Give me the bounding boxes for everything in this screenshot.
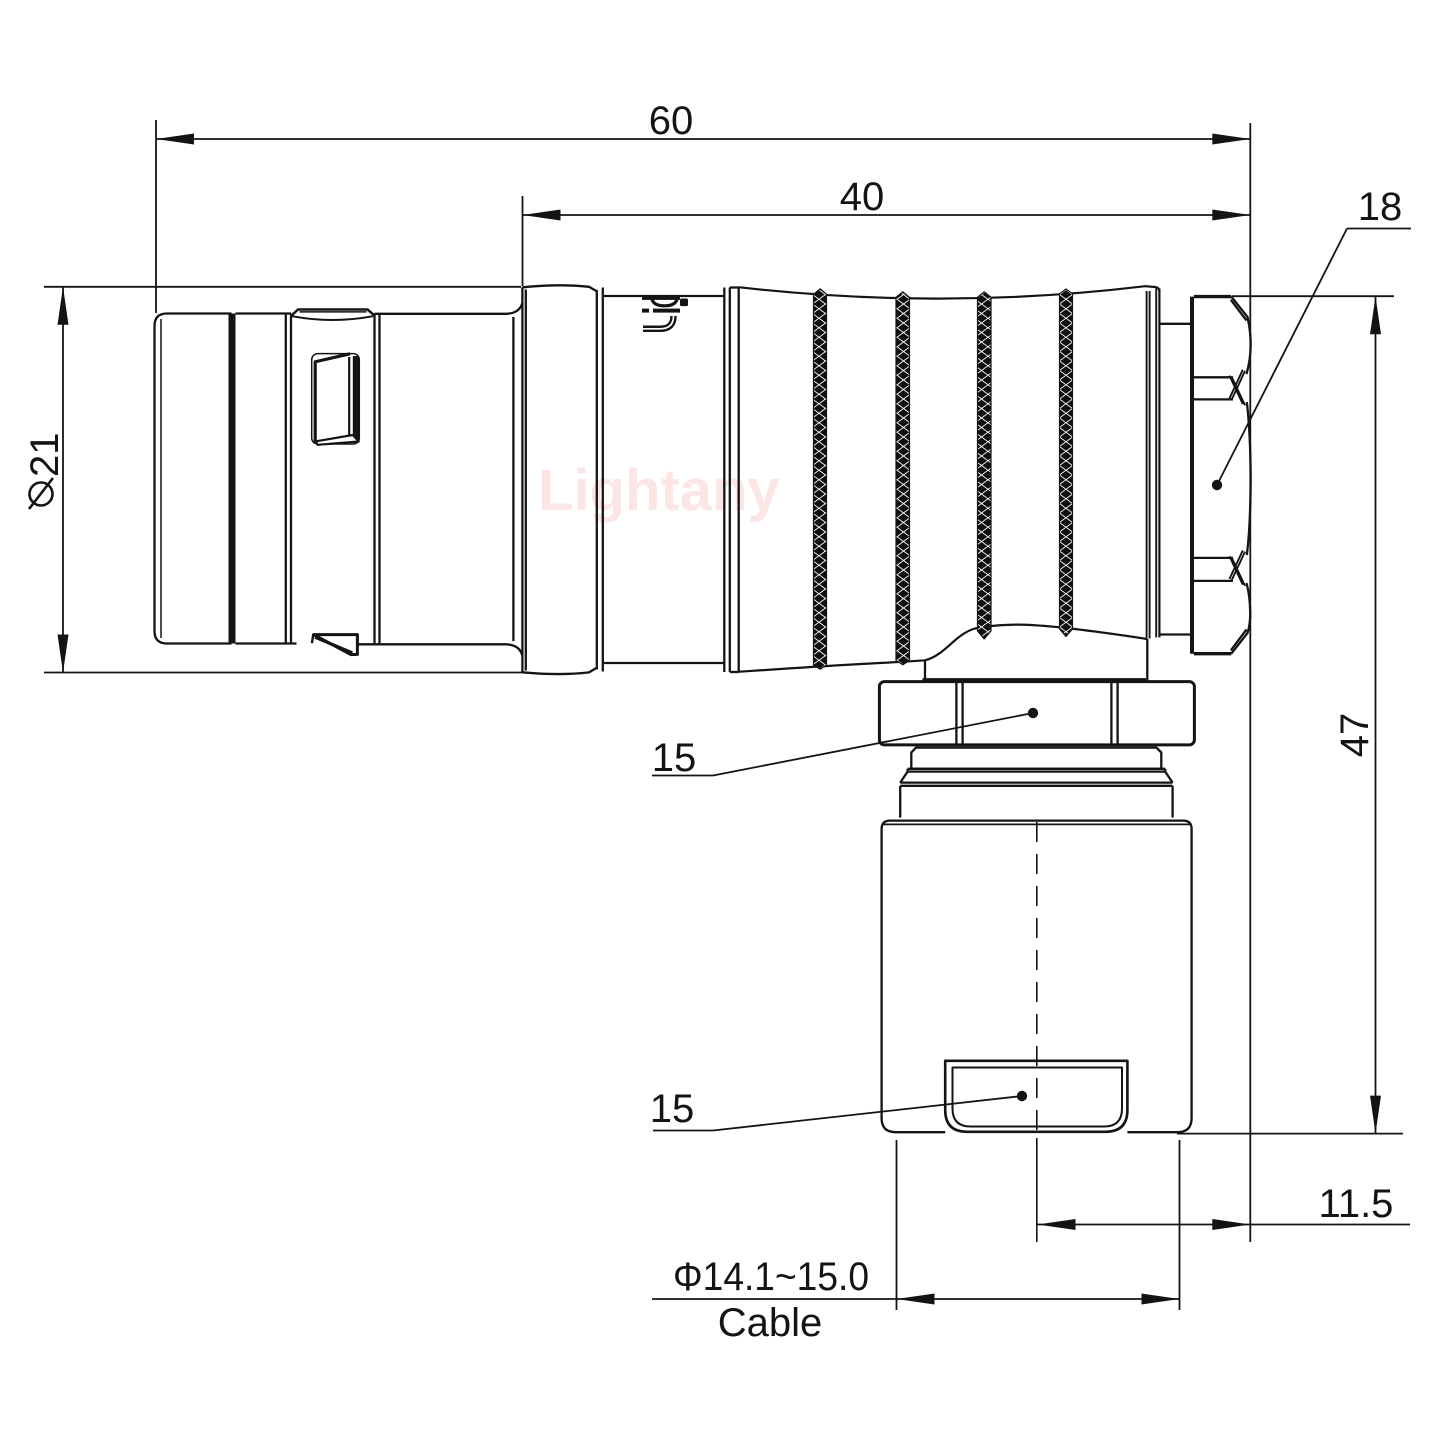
svg-text:21: 21 bbox=[23, 433, 67, 478]
svg-text:15: 15 bbox=[650, 1087, 695, 1131]
svg-text:18: 18 bbox=[1358, 185, 1403, 229]
svg-text:11.5: 11.5 bbox=[1319, 1182, 1394, 1226]
svg-text:15: 15 bbox=[652, 736, 697, 780]
svg-text:60: 60 bbox=[649, 99, 694, 143]
svg-text:Lightany: Lightany bbox=[538, 458, 780, 523]
svg-text:47: 47 bbox=[1333, 713, 1377, 758]
svg-text:Cable: Cable bbox=[718, 1301, 823, 1345]
svg-text:Φ14.1~15.0: Φ14.1~15.0 bbox=[673, 1255, 869, 1299]
svg-text:40: 40 bbox=[840, 175, 885, 219]
